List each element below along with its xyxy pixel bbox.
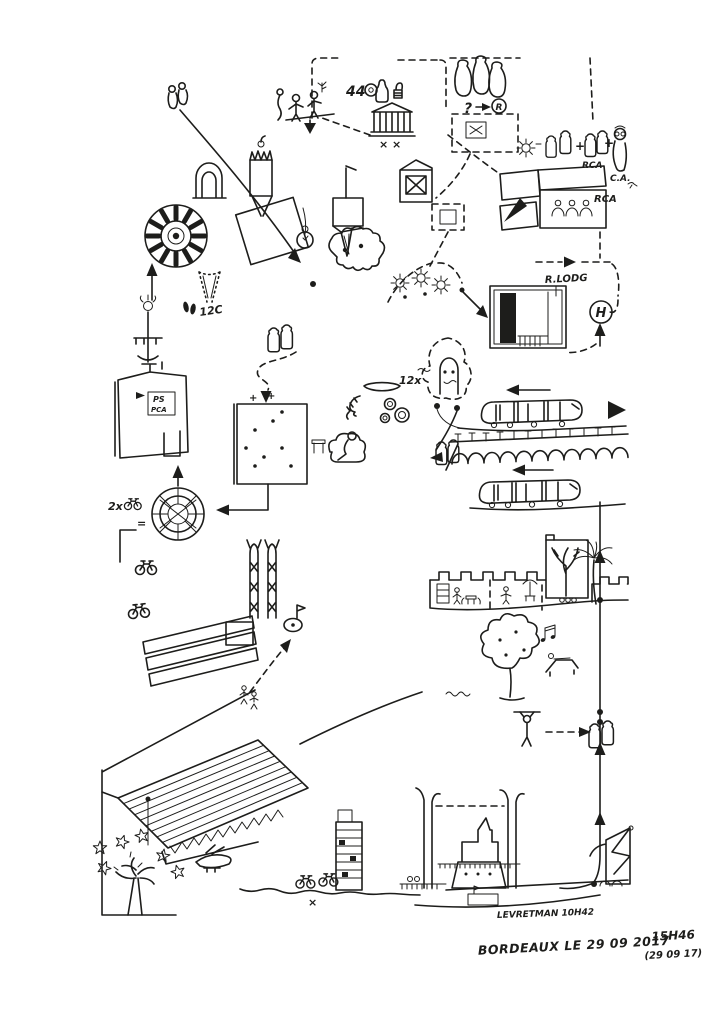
dashed-box-topright [452, 114, 518, 152]
castle-wall-cafe [430, 572, 628, 610]
bicycles-left [128, 561, 157, 619]
sun-lounger [546, 654, 578, 677]
pull-up-figure [514, 712, 591, 746]
route-into-rlodg [460, 288, 489, 319]
twin-pylons [247, 540, 279, 618]
bridge-note-label: LEVRETMAN 10H42 [497, 908, 595, 921]
dashed-square-mid [430, 154, 470, 266]
waffle-facade: + + [234, 391, 307, 484]
price-top-label: 44 [345, 84, 365, 100]
water-squiggle [446, 692, 470, 696]
wine-price-note: 44 [345, 80, 402, 102]
bridge-note-label-group: LEVRETMAN 10H42 [497, 908, 595, 921]
signature-block: BORDEAUX LE 29 09 2017 15H46 (29 09 17) [477, 927, 702, 971]
friends-group: + RCA + C.A. [517, 126, 637, 188]
ghost-tombstone [418, 338, 471, 428]
oysters-count-label: 12x [399, 374, 422, 387]
vine-trellis [143, 616, 258, 686]
lift-bridge [416, 788, 524, 888]
r-lodg-shop: R.LODG [490, 273, 588, 348]
signature-date-alt: (29 09 17) [644, 948, 702, 962]
terrace-figures [277, 82, 334, 134]
bikes-count-label: 2x [108, 500, 124, 513]
rose-window-wheel [145, 205, 207, 267]
waffle-to-wheel-route [216, 484, 268, 516]
plus-1-label: + [575, 139, 585, 153]
starred-tree [93, 828, 186, 915]
scalloped-pastry [329, 227, 384, 271]
reading-sofa [312, 432, 365, 462]
pont-de-pierre [446, 427, 628, 470]
cargo-ship [452, 818, 506, 888]
sun-trio [388, 263, 462, 302]
oyster-platter: 12x [347, 374, 423, 423]
rca-house: RCA [538, 166, 617, 258]
equals-label: = [137, 517, 146, 530]
route-jar-figures [589, 721, 613, 748]
stone-archway [193, 163, 226, 198]
sign-ps: PS [153, 395, 165, 404]
dotted-ice-cream-cone: 12C [182, 272, 223, 319]
park-tree [481, 614, 539, 700]
plus-3-label: + [249, 393, 257, 404]
striped-panels [448, 135, 540, 230]
lamp-fountain [134, 295, 162, 364]
ridged-roof-hangar [102, 692, 422, 864]
tram-lower [470, 465, 625, 510]
gabled-house [400, 160, 432, 202]
grand-theatre: × × [322, 103, 415, 151]
circled-r-label: R [496, 103, 503, 113]
plus-4-label: + [267, 391, 275, 402]
theatre-crosses-label: × × [379, 138, 401, 151]
canele-wheel: 2x = [108, 465, 204, 562]
wine-bottle-figures [268, 325, 292, 352]
ca-person-label: C.A. [610, 174, 631, 184]
cone-note-label: 12C [199, 303, 224, 319]
sign-pca: PCA [151, 406, 167, 414]
sketch-page: 12C PS PCA + + 12x 2x = [0, 0, 724, 1024]
dashed-stroll-path [257, 352, 296, 403]
courtyard-tree-house [546, 535, 588, 598]
rue-lodg-label: R.LODG [545, 273, 588, 286]
strolling-pair [168, 83, 187, 109]
music-notes [540, 625, 556, 643]
signature-city-date: BORDEAUX LE 29 09 2017 [478, 933, 671, 958]
museum-entrance: PS PCA [115, 362, 188, 458]
signature-time: 15H46 [651, 927, 695, 943]
sketch-canvas: 12C PS PCA + + 12x 2x = [0, 0, 724, 1024]
plus-2-label: + [604, 136, 614, 150]
hotel-h-label: H [596, 306, 607, 321]
arrow-up-under-wheel [147, 263, 158, 300]
route-long-diagonal [180, 110, 301, 263]
rca-building-label: RCA [594, 194, 617, 205]
tower-block [336, 810, 362, 890]
wall-right-segment [592, 577, 628, 602]
bike-cross-label: × [308, 896, 317, 909]
machicolated-tower [333, 166, 363, 256]
